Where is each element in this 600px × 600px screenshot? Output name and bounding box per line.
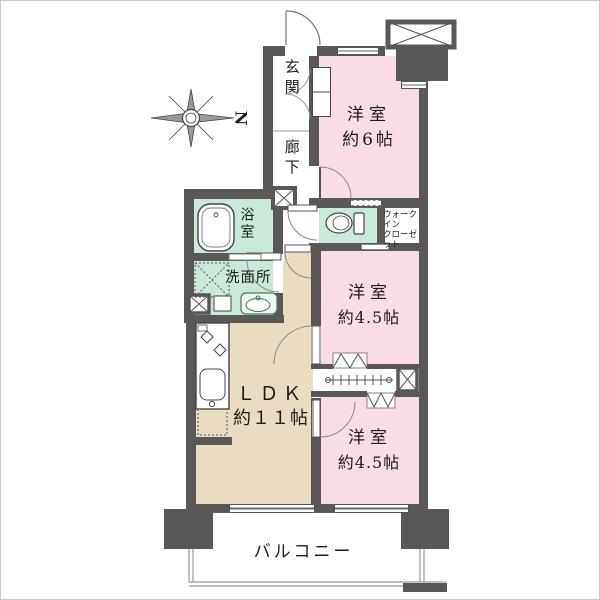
toilet-door-swing	[288, 205, 317, 240]
entrance-label: 玄関	[282, 59, 301, 121]
wall-closet-bottom-2	[395, 391, 419, 397]
ps-box-top-icon	[388, 22, 454, 47]
bedroom2-label: 洋室	[319, 283, 421, 304]
opening-bedroom1-door	[309, 166, 319, 198]
bedroom1-closet-opening	[351, 200, 381, 206]
washroom-label: 洗面所	[225, 269, 272, 287]
ldk-strip-floor	[284, 251, 313, 323]
wall-corner-block	[396, 49, 448, 81]
bedroom1-size: 約6帖	[311, 130, 427, 151]
ldk-label: ＬＤＫ	[206, 383, 336, 407]
balcony-end-wall	[403, 583, 447, 592]
compass-icon	[151, 89, 234, 147]
window-under-block	[401, 81, 427, 89]
wall-bath-top	[184, 189, 283, 199]
wic-label: ウォークイン クローゼット	[383, 210, 421, 250]
wall-closet-top-2	[367, 364, 419, 369]
bathroom-label: 浴室	[237, 207, 255, 253]
wall-kitchen-stub	[186, 437, 232, 445]
wall-washroom-bottom	[184, 315, 284, 323]
wall-bath-bottom	[184, 253, 273, 261]
opening-washroom-door	[273, 254, 283, 293]
wall-hall-a	[273, 199, 283, 254]
window-ldk-balcony	[229, 504, 315, 513]
compass-north-label: N	[230, 111, 250, 126]
bedroom3-size: 約4.5帖	[313, 453, 425, 473]
bedroom1-label: 洋室	[319, 105, 419, 126]
wall-corridor-left	[263, 46, 273, 194]
entrance-door-swing	[286, 11, 320, 45]
bedroom3-label: 洋室	[319, 428, 421, 449]
floor-plan: 玄関 廊下 洋室 約6帖 ウォークイン クローゼット 浴室 洗面所 洋室 約4.…	[0, 0, 600, 600]
toilet-floor	[319, 208, 377, 243]
window-bedroom3-balcony	[334, 504, 409, 513]
wall-bottom-2	[315, 504, 334, 513]
pillar-right	[401, 509, 449, 549]
opening-bedroom2-door	[311, 326, 321, 364]
bathroom-floor	[194, 199, 273, 255]
wic-label-line1: ウォークイン	[383, 210, 417, 230]
window-bedroom1-top	[337, 47, 379, 55]
wall-ldk-left	[186, 323, 196, 504]
balcony-label: バルコニー	[231, 542, 376, 563]
pillar-left	[164, 509, 213, 549]
corridor-label: 廊下	[282, 139, 301, 201]
wall-closet-top-1	[311, 364, 333, 369]
wic-label-line2: クローゼット	[383, 230, 417, 250]
opening-entrance-door	[285, 46, 317, 56]
bedroom2-size: 約4.5帖	[313, 308, 425, 328]
ps-box-closet-icon	[398, 368, 417, 391]
